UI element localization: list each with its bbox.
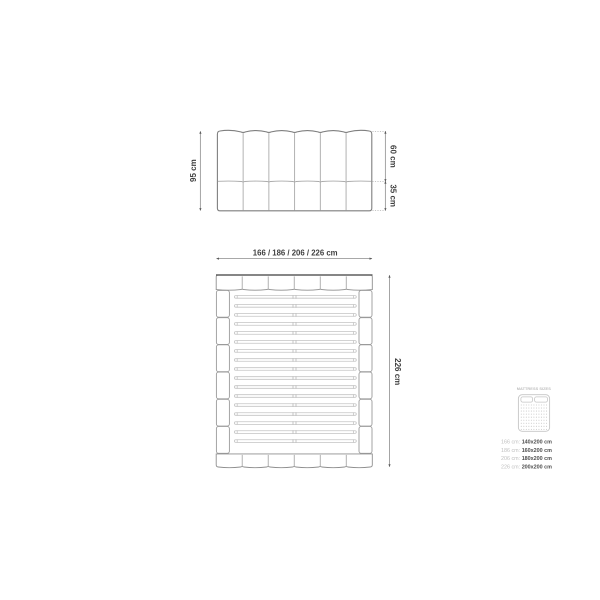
svg-text:206 cm: 180x200 cm: 206 cm: 180x200 cm <box>501 456 552 462</box>
svg-text:166 cm: 140x200 cm: 166 cm: 140x200 cm <box>501 440 552 446</box>
svg-text:226 cm: 226 cm <box>393 358 402 385</box>
svg-text:MATTRESS SIZES: MATTRESS SIZES <box>517 386 551 391</box>
svg-text:35 cm: 35 cm <box>388 184 397 207</box>
svg-text:60 cm: 60 cm <box>388 145 397 168</box>
svg-text:186 cm: 160x200 cm: 186 cm: 160x200 cm <box>501 448 552 454</box>
svg-text:166 / 186 / 206 / 226 cm: 166 / 186 / 206 / 226 cm <box>253 248 338 258</box>
svg-text:95 cm: 95 cm <box>189 159 198 182</box>
svg-text:226 cm: 200x200 cm: 226 cm: 200x200 cm <box>501 465 552 471</box>
